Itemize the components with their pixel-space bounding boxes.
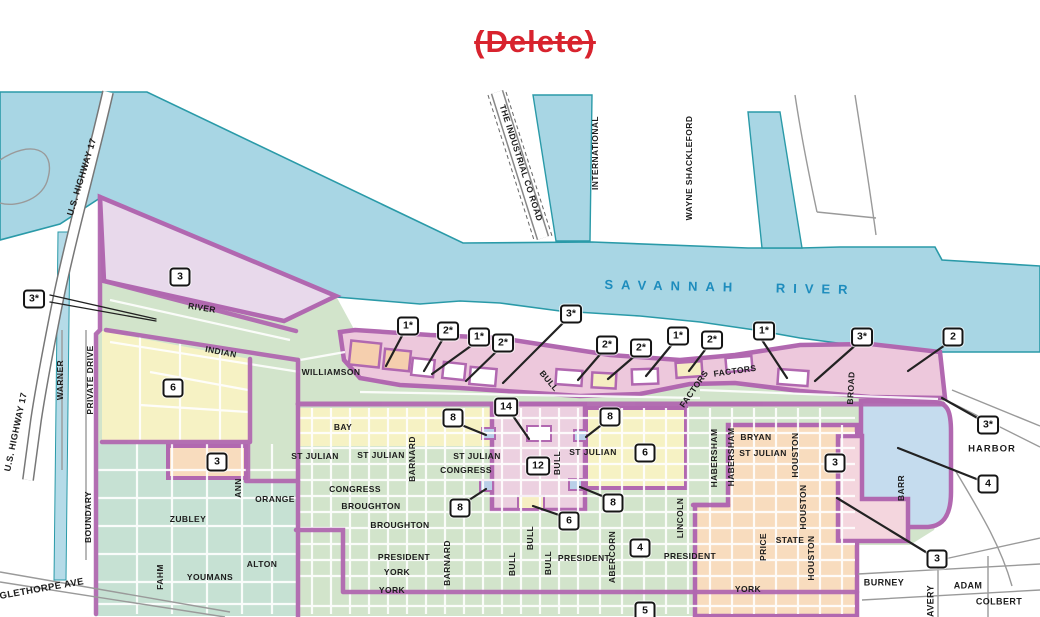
zone-badge: 8: [443, 408, 464, 427]
street-label: BURNEY: [864, 579, 904, 588]
zone-badge: 3*: [560, 304, 582, 323]
zone-badge: 2*: [492, 333, 514, 352]
street-label: WARNER: [56, 360, 65, 400]
zone-badge: 3: [825, 453, 846, 472]
zone-badge: 2*: [596, 335, 618, 354]
street-label: HOUSTON: [799, 484, 808, 529]
zone-badge: 3*: [977, 415, 999, 434]
street-label: HARBOR: [968, 444, 1016, 454]
street-label: FAHM: [156, 564, 165, 590]
street-label: BOUNDARY: [84, 491, 93, 543]
zone-badge: 4: [978, 474, 999, 493]
street-label: WILLIAMSON: [302, 368, 361, 377]
street-label: HOUSTON: [791, 432, 800, 477]
zone-badge: 2: [943, 327, 964, 346]
zone-badge: 1*: [397, 316, 419, 335]
street-label: ST JULIAN: [291, 452, 339, 461]
street-label: ST JULIAN: [569, 448, 617, 457]
zone-badge: 3: [170, 267, 191, 286]
street-label: ST JULIAN: [453, 452, 501, 461]
zone-badge: 6: [635, 443, 656, 462]
street-label: STATE: [776, 536, 805, 545]
zone-badge: 12: [526, 456, 550, 475]
street-label: BROUGHTON: [370, 521, 429, 530]
street-label: PRESIDENT: [378, 553, 430, 562]
street-label: ST JULIAN: [739, 449, 787, 458]
street-label: COLBERT: [976, 598, 1022, 607]
zone-badge: 2*: [630, 338, 652, 357]
zone-badge: 3*: [23, 289, 45, 308]
street-label: YORK: [384, 568, 410, 577]
street-label: ZUBLEY: [170, 515, 206, 524]
street-label: AVERY: [927, 585, 936, 617]
street-label: WAYNE SHACKLEFORD: [685, 116, 694, 221]
street-label: INTERNATIONAL: [591, 116, 600, 190]
street-label: PRIVATE DRIVE: [86, 345, 95, 414]
street-label: ANN: [234, 478, 243, 498]
street-label: PRICE: [759, 533, 768, 561]
zone-badge: 3*: [851, 327, 873, 346]
street-label: ALTON: [247, 560, 278, 569]
zone-badge: 6: [559, 511, 580, 530]
street-label: BARNARD: [408, 436, 417, 482]
street-label: BULL: [544, 551, 553, 575]
street-label: BRYAN: [740, 433, 771, 442]
zone-badge: 1*: [468, 327, 490, 346]
street-label: BROAD: [846, 371, 856, 405]
street-label: PRESIDENT: [664, 552, 716, 561]
street-label: PRESIDENT: [558, 554, 610, 563]
zone-badge: 4: [630, 538, 651, 557]
zone-badge: 2*: [437, 321, 459, 340]
street-label: HABERSHAM: [710, 429, 719, 488]
street-label: BAY: [334, 423, 352, 432]
street-label: HABERSHAM: [727, 428, 736, 487]
street-label: YORK: [379, 586, 405, 595]
zone-badge: 8: [450, 498, 471, 517]
zone-badge: 5: [635, 601, 656, 617]
delete-annotation: (Delete): [474, 24, 596, 60]
street-label: HOUSTON: [807, 535, 816, 580]
street-label: CONGRESS: [329, 485, 381, 494]
street-label: CONGRESS: [440, 466, 492, 475]
zone-badge: 6: [163, 378, 184, 397]
street-label: YOUMANS: [187, 573, 233, 582]
map-graphic: [0, 0, 1040, 617]
street-label: LINCOLN: [676, 498, 685, 539]
zone-badge: 3: [207, 452, 228, 471]
street-label: BULL: [526, 526, 535, 550]
street-label: ABERCORN: [608, 531, 617, 583]
street-label: ADAM: [954, 582, 983, 591]
street-label: YORK: [735, 585, 761, 594]
map-page: (Delete) SAVANNAH RIVER U.S. HIGHWAY 17U…: [0, 0, 1040, 617]
street-label: BARR: [897, 475, 906, 501]
street-label: ST JULIAN: [357, 451, 405, 460]
street-label: BULL: [553, 451, 562, 475]
street-label: BULL: [508, 552, 517, 576]
zone-badge: 8: [600, 407, 621, 426]
zone-badge: 1*: [753, 321, 775, 340]
zone-badge: 2*: [701, 330, 723, 349]
zone-badge: 1*: [667, 326, 689, 345]
zone-badge: 3: [927, 549, 948, 568]
street-label: BROUGHTON: [341, 502, 400, 511]
street-label: ORANGE: [255, 495, 295, 504]
street-label: BARNARD: [443, 540, 452, 586]
zone-badge: 14: [494, 397, 518, 416]
zone-badge: 8: [603, 493, 624, 512]
